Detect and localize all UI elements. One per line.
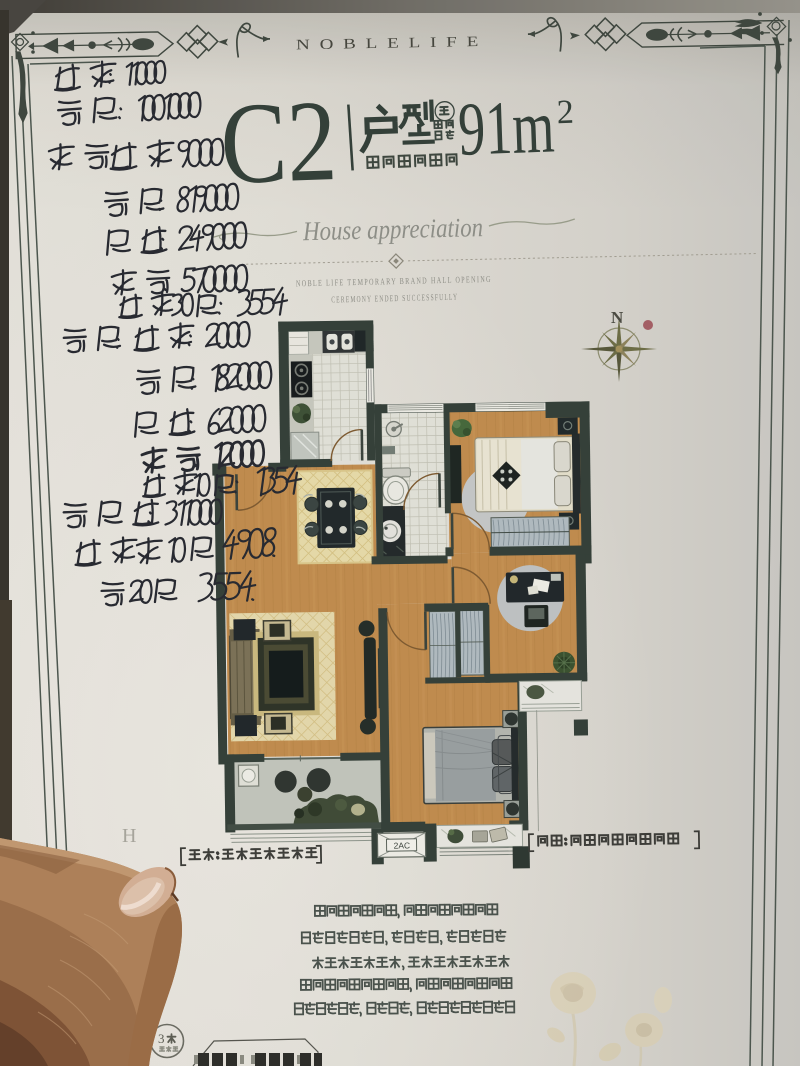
svg-text:3: 3 [158, 1031, 165, 1046]
